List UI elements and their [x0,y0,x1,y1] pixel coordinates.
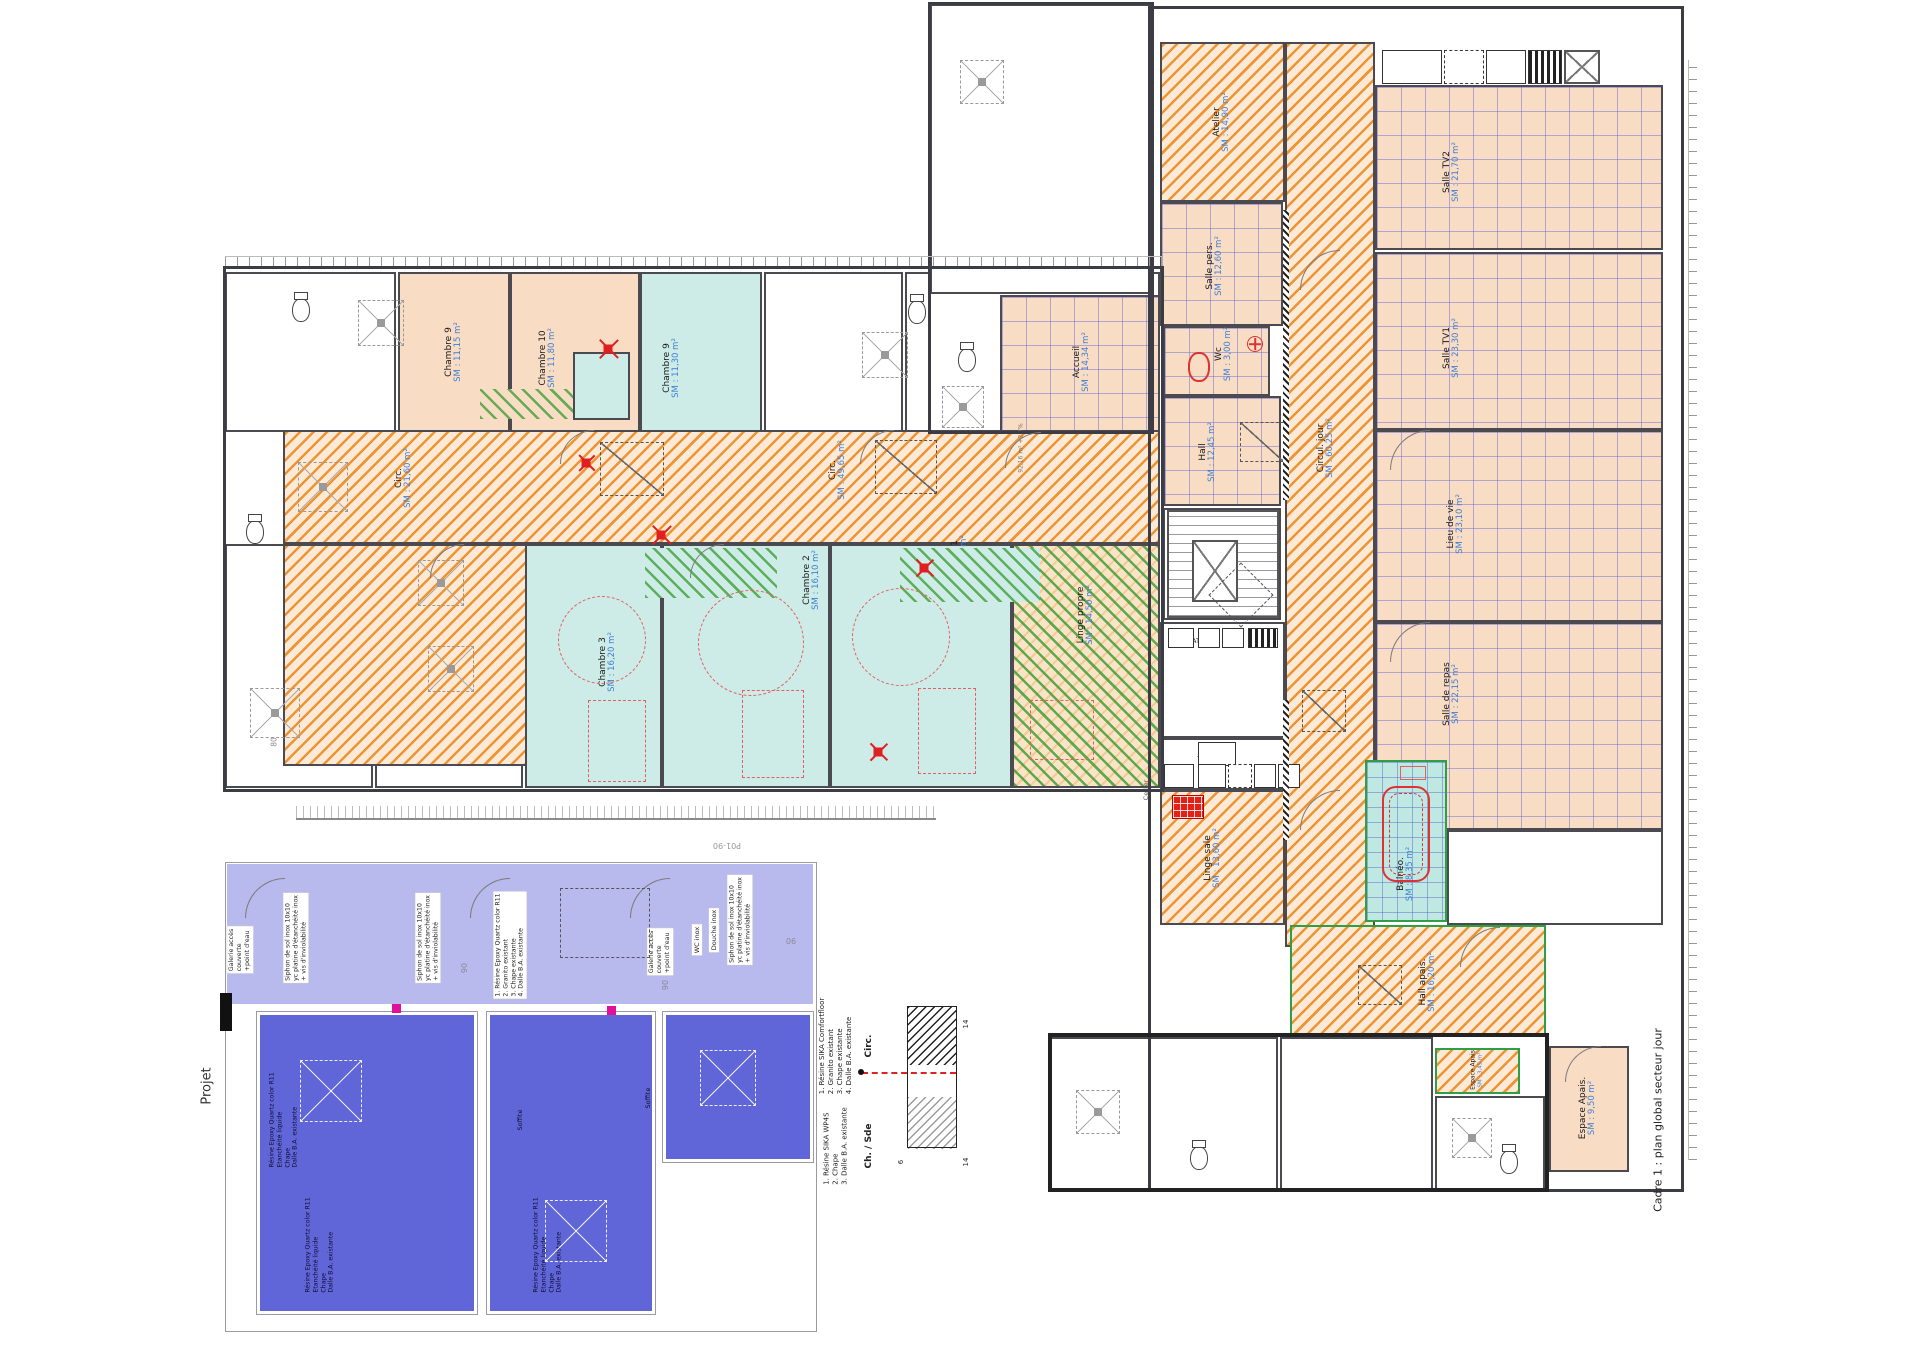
red-cross-symbol [912,556,936,580]
shower-symbol [1452,1118,1492,1158]
annotation: Siphon de sol inox 10x10 yc platine d'ét… [283,893,308,983]
dashed-zone [560,888,650,958]
shower-symbol [942,386,984,428]
red-cross-symbol [866,740,890,764]
annotation: Soffite [516,1110,524,1131]
kitchen-appliance [1248,628,1278,648]
shower-symbol [1076,1090,1120,1134]
appliance-dark [1528,50,1562,84]
toilet [1500,1150,1518,1174]
legend-dot [858,1069,864,1075]
kitchen-unit [1222,628,1244,648]
annotation: Galerie accès couverte +point d'eau [647,929,673,976]
legend-red-line [862,1072,956,1074]
wc-red [1188,352,1210,382]
appliance-x [1564,50,1600,84]
zone [1280,1037,1433,1190]
inox-shower-symbol [700,1050,756,1106]
bed-outline [588,700,646,782]
room-salle-pers- [1160,202,1283,326]
floor-plan-canvas: Chambre 9SM : 11,15 m²Chambre 10SM : 11,… [0,0,1920,1352]
annotation: Galerie accès couverte +point d'eau [227,927,253,974]
toilet [246,520,264,544]
project-label: Projet [200,1067,215,1104]
pmr-turning-circle [852,588,950,686]
toilet [958,348,976,372]
window-ticks-top [225,256,1162,266]
zone [487,1012,655,1314]
legend-circ-lines: 1. Résine SIKA Comfortfloor 2. Granito e… [818,998,854,1095]
sink-red [1400,766,1426,780]
duct-box [1302,690,1346,732]
room-salle-tv2 [1375,85,1663,250]
red-equipment [1172,795,1204,819]
red-plus-symbol [1247,336,1263,352]
frame-caption: Cadre 1 : plan global secteur jour [1652,1028,1665,1212]
annotation: Soffite [644,1088,652,1109]
zone [480,389,573,419]
p-box [1254,764,1276,788]
four-box [1164,764,1194,788]
room-hall-apais- [1290,925,1546,1037]
inox-shower-symbol [545,1200,607,1262]
bed-outline [742,690,804,778]
terrace-edge [296,806,936,820]
inox-shower-symbol [300,1060,362,1122]
hatched-wall [1283,210,1289,500]
shower-symbol [250,688,300,738]
zone [573,352,630,420]
duct-box [1240,422,1284,462]
pmr-turning-circle [558,596,646,684]
magenta-marker [607,1006,616,1015]
room-espace-apais [1435,1048,1520,1094]
duct-box [600,442,664,496]
p-box [1278,764,1300,788]
bed-outline [918,688,976,774]
bathtub [1382,786,1430,882]
legend-circ-title: Circ. [864,1035,874,1058]
wall-fill [220,993,232,1031]
kitchen-unit [1198,628,1220,648]
zone [930,4,1152,294]
legend-dim-bottom: 14 [962,1158,970,1167]
chariot-box [1198,742,1236,766]
shower-symbol [862,332,908,378]
red-cross-symbol [595,336,621,362]
annotation: WC inox [692,925,702,956]
toilet [1190,1146,1208,1170]
annotation: Siphon de sol inox 10x10 yc platine d'ét… [415,893,440,983]
shower-symbol [428,646,474,692]
legend-chsde-lines: 1. Résine SIKA WP4S 2. Chape 3. Dalle B.… [822,1107,849,1185]
zone [1447,830,1663,925]
shower-symbol [960,60,1004,104]
annotation: 80 [269,737,278,747]
shower-symbol [298,462,348,512]
annotation: 90 [786,935,796,945]
legend-dim-left: 6 [897,1160,905,1164]
room-circ- [283,544,545,766]
hatched-wall [1283,700,1289,840]
dashed-unit [1228,764,1252,788]
magenta-marker [392,1004,401,1013]
shower-symbol [358,300,404,346]
legend-dim-top: 14 [962,1020,970,1029]
annotation: Douche inox [709,908,719,952]
duct-box [1358,965,1402,1005]
counter-unit [1444,50,1484,84]
annotation: Siphon de sol inox 10x10 yc platine d'ét… [727,875,752,965]
room-accueil [1000,295,1160,432]
window-ticks-right [1688,60,1697,1160]
room-atelier [1160,42,1285,202]
equipment-outline [1030,700,1094,760]
legend-sample-box [907,1006,957,1148]
toilet [908,300,926,324]
zone [225,272,396,432]
annotation: Cellier [1142,780,1150,801]
toilet [292,298,310,322]
pmr-turning-circle [698,590,804,696]
annotation: Résine Epoxy Quartz color R11 Etanchéité… [305,1197,336,1292]
plan-box [1198,764,1226,788]
legend-chsde-title: Ch. / Sde [864,1123,874,1168]
annotation: 90 [661,980,671,990]
red-cross-symbol [648,522,674,548]
annotation: P01-90 [713,840,741,850]
annotation: Résine Epoxy Quartz color R11 Etanchéité… [269,1072,300,1167]
annotation: 90 [460,963,470,973]
kitchen-unit-at [1168,628,1194,648]
room-chambre-9 [640,272,762,432]
counter-unit [1486,50,1526,84]
counter-unit [1382,50,1442,84]
room-salle-tv1 [1375,252,1663,430]
